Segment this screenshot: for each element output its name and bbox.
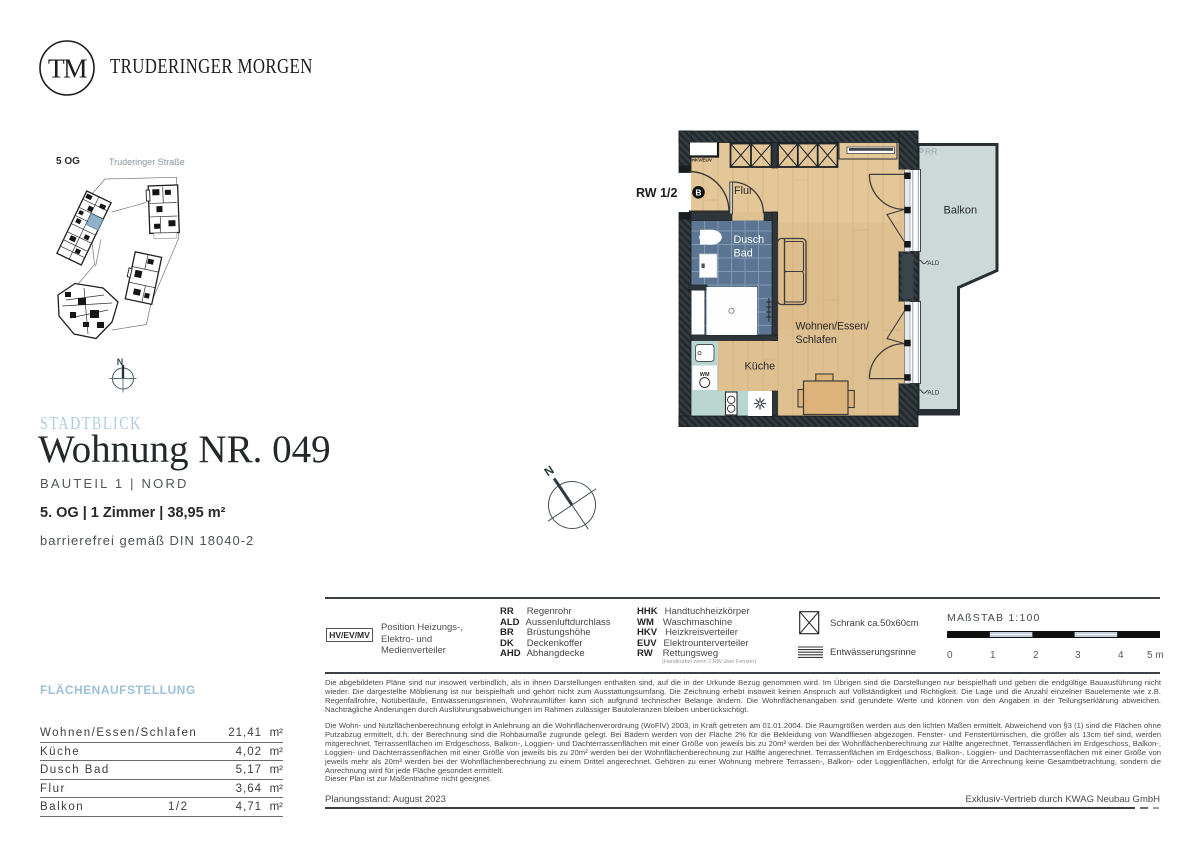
svg-text:Dusch: Dusch <box>734 234 765 246</box>
svg-text:Küche: Küche <box>745 361 776 373</box>
svg-text:Flur: Flur <box>734 185 753 197</box>
svg-text:Balkon: Balkon <box>944 205 978 217</box>
svg-text:ALD: ALD <box>928 261 940 267</box>
svg-text:RR: RR <box>925 147 937 157</box>
svg-text:ALD: ALD <box>928 390 940 396</box>
svg-text:TM: TM <box>48 53 87 84</box>
svg-text:Schlafen: Schlafen <box>796 334 837 346</box>
svg-text:HKV/EUV: HKV/EUV <box>692 158 713 163</box>
svg-text:Wohnen/Essen/: Wohnen/Essen/ <box>796 321 869 333</box>
svg-text:Bad: Bad <box>734 248 753 260</box>
svg-text:B: B <box>695 187 701 197</box>
svg-text:N: N <box>542 463 557 479</box>
